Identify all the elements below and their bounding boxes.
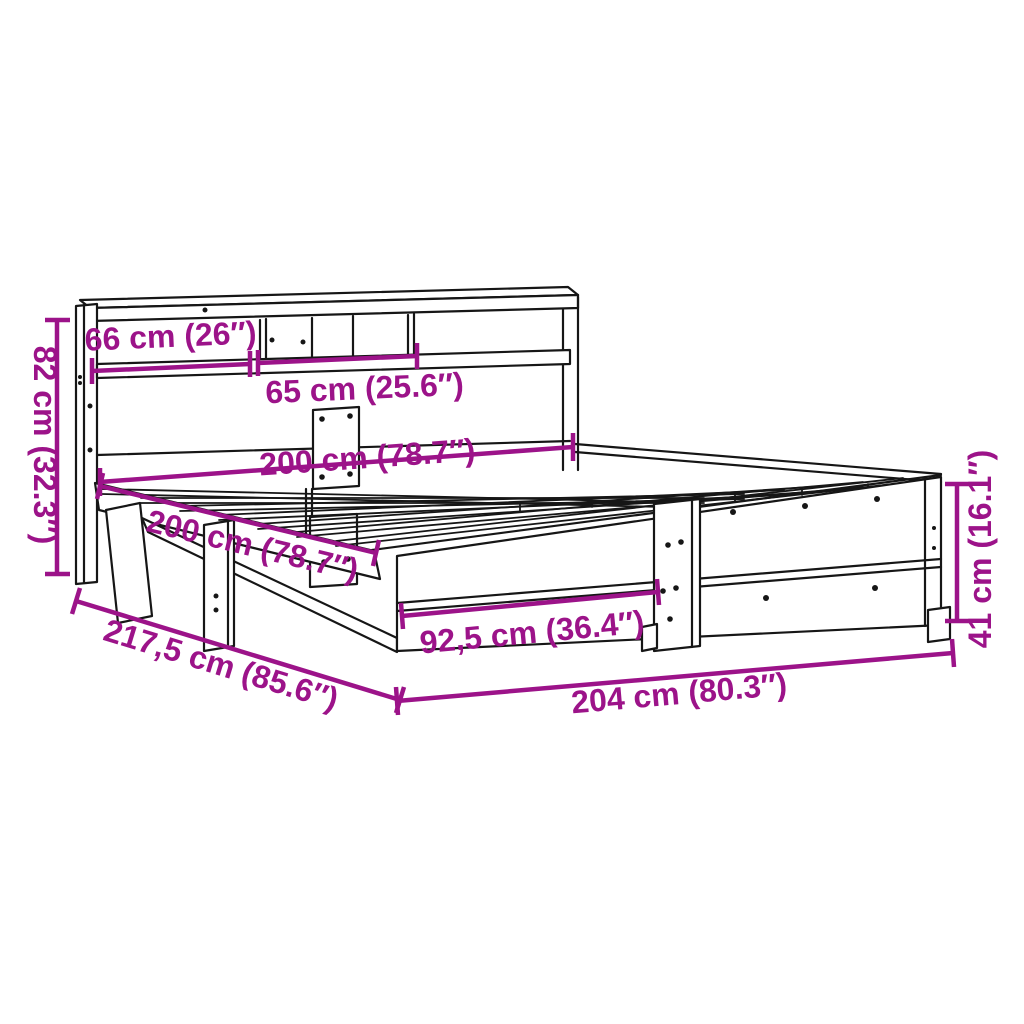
dim-label-headboard-shelf-right: 65 cm (25.6″): [265, 366, 465, 411]
bed-dimension-diagram: 66 cm (26″) 65 cm (25.6″) 82 cm (32.3″) …: [0, 0, 1024, 1024]
dim-label-side-rail-height: 41 cm (16.1″): [962, 450, 998, 649]
dim-label-bed-inner-width: 200 cm (78.7″): [258, 432, 476, 483]
diagram-canvas: 66 cm (26″) 65 cm (25.6″) 82 cm (32.3″) …: [0, 0, 1024, 1024]
dim-label-headboard-height: 82 cm (32.3″): [27, 346, 63, 545]
dim-label-total-width: 204 cm (80.3″): [570, 666, 789, 721]
dim-label-headboard-shelf-left: 66 cm (26″): [84, 314, 257, 357]
